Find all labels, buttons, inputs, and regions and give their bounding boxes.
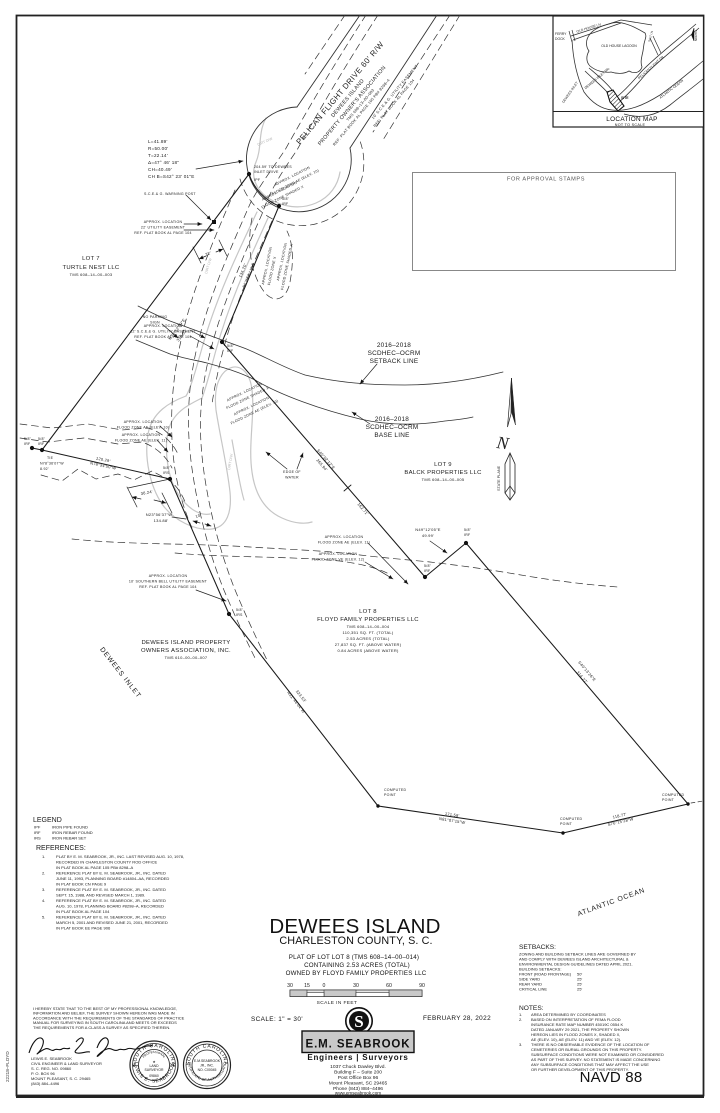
svg-text:SETBACKS:: SETBACKS: xyxy=(519,944,556,951)
svg-text:2.: 2. xyxy=(519,1017,522,1022)
svg-text:5/8": 5/8" xyxy=(227,344,235,348)
svg-text:S: S xyxy=(354,1012,363,1031)
svg-text:30: 30 xyxy=(353,983,359,989)
svg-text:THE REQUIREMENTS FOR A CLA: THE REQUIREMENTS FOR A CLASS A SURVEY AS… xyxy=(33,1025,170,1030)
svg-text:SCDHEC–OCRM: SCDHEC–OCRM xyxy=(366,424,419,431)
svg-text:JR., INC.: JR., INC. xyxy=(200,1064,214,1068)
svg-text:WATER: WATER xyxy=(285,476,299,480)
svg-text:LOT 7: LOT 7 xyxy=(82,256,100,262)
svg-text:OWNERS ASSOCIATION, INC.: OWNERS ASSOCIATION, INC. xyxy=(141,648,231,654)
svg-text:CHARLESTON COUNTY, S. C.: CHARLESTON COUNTY, S. C. xyxy=(279,935,432,947)
svg-text:5/8": 5/8" xyxy=(424,564,432,568)
svg-text:E.M.SEABROOK: E.M.SEABROOK xyxy=(194,1059,221,1063)
svg-text:T=22.14': T=22.14' xyxy=(148,153,168,158)
svg-text:5/8": 5/8" xyxy=(38,437,46,441)
svg-text:IN PLAT BOOK AL PAGE 104: IN PLAT BOOK AL PAGE 104 xyxy=(56,909,110,914)
svg-text:COMPUTED: COMPUTED xyxy=(560,817,582,821)
svg-text:OWNED BY FLOYD FAMILY PROP: OWNED BY FLOYD FAMILY PROPERTIES LLC xyxy=(286,970,427,977)
svg-text:4.: 4. xyxy=(42,898,45,903)
svg-text:FEBRUARY 28, 2022: FEBRUARY 28, 2022 xyxy=(423,1015,491,1022)
svg-text:REFERENCE PLAT BY E. M. S: REFERENCE PLAT BY E. M. SEABROOK, JR., I… xyxy=(56,871,166,876)
svg-text:S.C.E.& G. WARNING POST: S.C.E.& G. WARNING POST xyxy=(144,192,196,196)
svg-text:FLOOD ZONE AE (ELEV. 11): FLOOD ZONE AE (ELEV. 11) xyxy=(318,541,370,545)
svg-text:TMS 608–14–00–005: TMS 608–14–00–005 xyxy=(422,477,465,482)
svg-text:POINT: POINT xyxy=(662,798,675,802)
svg-text:E.M. SEABROOK: E.M. SEABROOK xyxy=(306,1039,411,1051)
svg-text:IRF: IRF xyxy=(464,533,471,537)
svg-text:Δ=47° 46' 18": Δ=47° 46' 18" xyxy=(148,160,179,165)
svg-text:IPF: IPF xyxy=(34,825,41,830)
svg-text:0: 0 xyxy=(323,983,326,989)
svg-text:REFERENCES:: REFERENCES: xyxy=(36,845,86,852)
svg-text:STATE PLANE: STATE PLANE xyxy=(497,465,501,491)
svg-text:NOT TO SCALE: NOT TO SCALE xyxy=(615,123,646,127)
svg-text:REFERENCE PLAT BY E. M. S: REFERENCE PLAT BY E. M. SEABROOK, JR., I… xyxy=(56,898,166,903)
svg-text:15: 15 xyxy=(304,983,310,989)
svg-text:★: ★ xyxy=(172,1063,176,1068)
svg-text:TMS 608–14–00–004: TMS 608–14–00–004 xyxy=(347,624,390,629)
svg-text:MARCH 5, 2001 AND REVISED: MARCH 5, 2001 AND REVISED JUNE 21, 2001,… xyxy=(56,920,168,925)
svg-text:CH=40.49': CH=40.49' xyxy=(148,167,172,172)
svg-text:IN PLAT BOOK CN PAGE 9: IN PLAT BOOK CN PAGE 9 xyxy=(56,882,107,887)
svg-text:Engineers | Surveyors: Engineers | Surveyors xyxy=(307,1053,408,1062)
svg-text:APPROX. LOCATION: APPROX. LOCATION xyxy=(122,433,161,437)
svg-text:IRF: IRF xyxy=(34,830,41,835)
svg-text:DEWEES ISLAND PROPERTY: DEWEES ISLAND PROPERTY xyxy=(142,640,231,646)
svg-text:COMPUTED: COMPUTED xyxy=(384,788,406,792)
svg-text:SEPT. 15, 1988, AND REVISE: SEPT. 15, 1988, AND REVISED MARCH 1, 198… xyxy=(56,893,145,898)
svg-text:10' SOUTHERN BELL UTILITY EASE: 10' SOUTHERN BELL UTILITY EASEMENT xyxy=(129,580,208,584)
svg-text:3.: 3. xyxy=(42,887,45,892)
svg-text:PLAT OF LOT LOT 8 (TMS 6: PLAT OF LOT LOT 8 (TMS 608–14–00–014) xyxy=(289,954,419,961)
svg-text:(843) 884–4496: (843) 884–4496 xyxy=(31,1081,60,1086)
svg-text:IRF: IRF xyxy=(282,202,289,206)
svg-text:★: ★ xyxy=(132,1063,136,1068)
svg-text:NAVD 88: NAVD 88 xyxy=(580,1069,643,1086)
svg-text:134.88': 134.88' xyxy=(154,518,169,523)
svg-text:COMPUTED: COMPUTED xyxy=(662,793,684,797)
svg-text:www.emseabrook.com: www.emseabrook.com xyxy=(335,1091,381,1096)
svg-text:RECORDED IN CHARLESTON COUN: RECORDED IN CHARLESTON COUNTY ROD OFFICE xyxy=(56,860,158,865)
svg-text:BASE LINE: BASE LINE xyxy=(374,432,409,439)
svg-text:IRF: IRF xyxy=(424,569,431,573)
svg-text:LOT 9: LOT 9 xyxy=(434,462,452,468)
svg-text:2016–2018: 2016–2018 xyxy=(375,416,409,423)
svg-text:OLD HOUSE LAGOON: OLD HOUSE LAGOON xyxy=(601,44,637,48)
svg-text:NOTES:: NOTES: xyxy=(519,1005,544,1012)
svg-text:LOCATION MAP: LOCATION MAP xyxy=(606,116,657,123)
svg-text:APPROX. LOCATION: APPROX. LOCATION xyxy=(124,420,163,424)
svg-text:IRON REBAR FOUND: IRON REBAR FOUND xyxy=(52,830,93,835)
svg-text:LEGEND: LEGEND xyxy=(33,817,62,824)
svg-text:1.: 1. xyxy=(42,854,45,859)
svg-text:APPROX. LOCATION: APPROX. LOCATION xyxy=(149,574,188,578)
svg-text:LOT 8: LOT 8 xyxy=(359,609,377,615)
svg-text:TIE: TIE xyxy=(47,456,54,460)
svg-text:NO PARKING: NO PARKING xyxy=(143,315,168,319)
svg-text:POINT: POINT xyxy=(384,793,397,797)
svg-text:INLET DRIVE: INLET DRIVE xyxy=(254,170,279,174)
svg-text:0.84 ACRES (ABOVE WATER): 0.84 ACRES (ABOVE WATER) xyxy=(337,648,399,653)
svg-text:Building F – Suite 200: Building F – Suite 200 xyxy=(334,1070,382,1076)
svg-text:25': 25' xyxy=(577,987,582,992)
svg-text:5/8": 5/8" xyxy=(163,466,171,470)
svg-text:Mount Pleasant, SC 29465: Mount Pleasant, SC 29465 xyxy=(329,1081,388,1087)
svg-text:90: 90 xyxy=(419,983,425,989)
svg-text:APPROX. LOCATION: APPROX. LOCATION xyxy=(144,220,183,224)
svg-text:L=41.89': L=41.89' xyxy=(148,139,168,144)
svg-text:FERRY: FERRY xyxy=(555,32,567,36)
svg-text:POINT: POINT xyxy=(560,822,573,826)
svg-text:N23°56'37"W: N23°56'37"W xyxy=(146,512,173,517)
svg-text:8.92': 8.92' xyxy=(40,467,49,471)
svg-text:IRF: IRF xyxy=(227,349,234,353)
svg-text:AUG. 10, 1978, PLANNING BO: AUG. 10, 1978, PLANNING BOARD #8298–A, R… xyxy=(56,904,164,909)
svg-text:30: 30 xyxy=(287,983,293,989)
svg-text:204.59' TO DEWEES: 204.59' TO DEWEES xyxy=(254,165,292,169)
svg-text:2016–2018: 2016–2018 xyxy=(377,342,411,349)
svg-text:2.: 2. xyxy=(42,871,45,876)
svg-text:CRITICAL LINE: CRITICAL LINE xyxy=(519,987,547,992)
svg-text:FLOOD ZONE AE (ELEV. 11): FLOOD ZONE AE (ELEV. 11) xyxy=(115,439,167,443)
svg-text:5.: 5. xyxy=(42,915,45,920)
svg-text:NO. C00045: NO. C00045 xyxy=(198,1068,217,1072)
svg-text:IRON PIPE FOUND: IRON PIPE FOUND xyxy=(52,825,88,830)
svg-text:SIGN: SIGN xyxy=(150,321,160,325)
svg-text:IRON REBAR SET: IRON REBAR SET xyxy=(52,836,87,841)
svg-text:27,837 SQ. FT. (ABOVE WATE: 27,837 SQ. FT. (ABOVE WATER) xyxy=(335,642,402,647)
svg-text:IRS: IRS xyxy=(236,613,243,617)
svg-text:SCALE: 1" = 30': SCALE: 1" = 30' xyxy=(251,1016,303,1023)
svg-text:22218–FLOYD: 22218–FLOYD xyxy=(5,1051,10,1082)
svg-text:IN PLAT BOOK EE PAGE 906: IN PLAT BOOK EE PAGE 906 xyxy=(56,926,111,931)
svg-text:SETBACK LINE: SETBACK LINE xyxy=(370,358,419,365)
svg-text:60: 60 xyxy=(386,983,392,989)
svg-text:SCALE IN FEET: SCALE IN FEET xyxy=(317,1000,358,1006)
svg-text:5/8": 5/8" xyxy=(464,528,472,532)
svg-text:R=50.00': R=50.00' xyxy=(148,146,168,151)
svg-text:Post Office Box 96: Post Office Box 96 xyxy=(338,1075,379,1081)
svg-text:IN PLAT BOOK AL PAGE 105: IN PLAT BOOK AL PAGE 105 PB# 8298–A xyxy=(56,865,134,870)
svg-text:N78°36'07"W: N78°36'07"W xyxy=(40,462,64,466)
svg-text:1037 Chuck Dawley Blvd.: 1037 Chuck Dawley Blvd. xyxy=(330,1064,386,1070)
svg-text:DOCK: DOCK xyxy=(555,37,566,41)
svg-text:SCDHEC–OCRM: SCDHEC–OCRM xyxy=(368,350,421,357)
svg-text:PLAT BY E. M. SEABROOK, J: PLAT BY E. M. SEABROOK, JR., INC. LAST R… xyxy=(56,854,184,859)
svg-text:TMS 610–00–00–007: TMS 610–00–00–007 xyxy=(165,655,208,660)
svg-text:CH B=S42° 23' 01"E: CH B=S42° 23' 01"E xyxy=(148,174,195,179)
svg-text:22' UTILITY EASEMENT: 22' UTILITY EASEMENT xyxy=(141,226,186,230)
svg-text:SITE: SITE xyxy=(621,96,629,100)
svg-text:EDGE OF: EDGE OF xyxy=(283,470,301,474)
svg-text:BALCK PROPERTIES LLC: BALCK PROPERTIES LLC xyxy=(404,470,482,476)
svg-text:09860: 09860 xyxy=(149,1074,159,1078)
svg-text:JUNE 11, 1993, PLANNING BO: JUNE 11, 1993, PLANNING BOARD #14804–AA,… xyxy=(56,876,169,881)
svg-text:5/8": 5/8" xyxy=(24,437,32,441)
svg-text:IRS: IRS xyxy=(163,471,170,475)
svg-text:FLOOD ZONE VE (ELEV. 12): FLOOD ZONE VE (ELEV. 12) xyxy=(312,558,365,562)
svg-text:REF. PLAT BOOK AL PAGE 104: REF. PLAT BOOK AL PAGE 104 xyxy=(139,585,196,589)
svg-text:NORTH: NORTH xyxy=(694,30,698,41)
svg-text:N49°12'05"E: N49°12'05"E xyxy=(415,527,441,532)
svg-text:IRF: IRF xyxy=(38,442,45,446)
svg-text:IRF: IRF xyxy=(24,442,31,446)
svg-text:5/8": 5/8" xyxy=(282,197,290,201)
svg-text:CONTAINING 2.53 ACRES (TOTA: CONTAINING 2.53 ACRES (TOTAL) xyxy=(304,962,410,969)
svg-text:SURVEYOR: SURVEYOR xyxy=(145,1068,165,1072)
svg-text:REF. PLAT BOOK AL PAGE 104: REF. PLAT BOOK AL PAGE 104 xyxy=(134,231,191,235)
svg-text:IRS: IRS xyxy=(34,836,41,841)
svg-text:TMS 608–14–00–003: TMS 608–14–00–003 xyxy=(70,272,113,277)
svg-text:49.99': 49.99' xyxy=(422,533,434,538)
svg-text:2.53 ACRES (TOTAL): 2.53 ACRES (TOTAL) xyxy=(346,636,390,641)
svg-text:3.: 3. xyxy=(519,1042,522,1047)
svg-text:APPROX. LOCATION: APPROX. LOCATION xyxy=(325,535,364,539)
svg-text:APPROX. LOCATION: APPROX. LOCATION xyxy=(319,552,358,556)
svg-text:110,351 SQ. FT. (TOTAL): 110,351 SQ. FT. (TOTAL) xyxy=(343,630,394,635)
svg-text:IPF: IPF xyxy=(254,178,261,182)
svg-text:5/8": 5/8" xyxy=(236,608,244,612)
svg-text:REFERENCE PLAT BY E. M. S: REFERENCE PLAT BY E. M. SEABROOK, JR., I… xyxy=(56,915,166,920)
svg-text:FOR APPROVAL STAMPS: FOR APPROVAL STAMPS xyxy=(507,177,585,183)
svg-text:TURTLE NEST LLC: TURTLE NEST LLC xyxy=(63,265,120,271)
svg-text:FLOYD FAMILY PROPERTIES LLC: FLOYD FAMILY PROPERTIES LLC xyxy=(317,617,419,623)
svg-text:FLOOD ZONE AE (ELEV. 10): FLOOD ZONE AE (ELEV. 10) xyxy=(117,426,170,430)
svg-text:REFERENCE PLAT BY E. M. S: REFERENCE PLAT BY E. M. SEABROOK, JR., I… xyxy=(56,887,166,892)
